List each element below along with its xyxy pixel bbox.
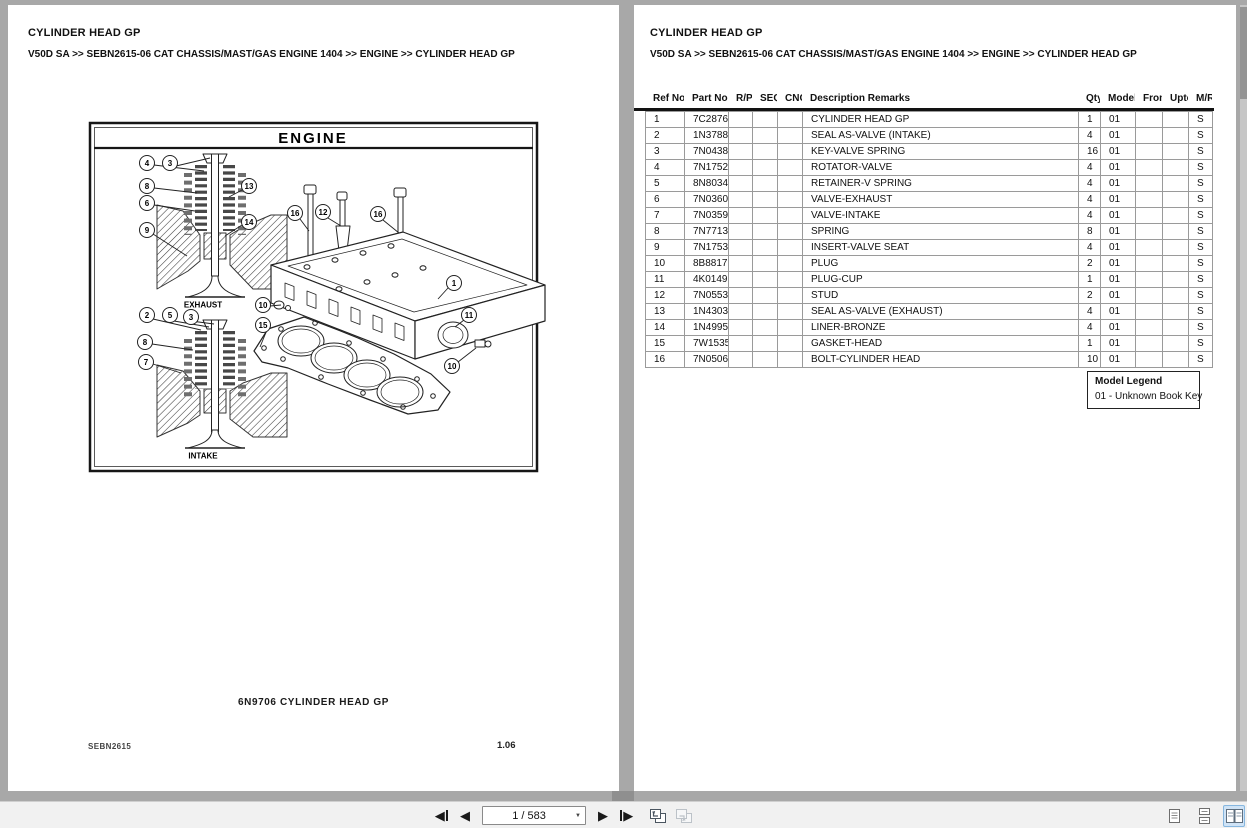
svg-text:11: 11	[465, 311, 474, 320]
cell-seq	[753, 256, 778, 272]
column-header: Qty	[1078, 91, 1100, 105]
table-row: 13 1N4303 SEAL AS-VALVE (EXHAUST) 4 01 S	[646, 304, 1213, 320]
cell-part-no: 7N0553	[685, 288, 729, 304]
cell-seq	[753, 144, 778, 160]
cell-qty: 4	[1079, 208, 1101, 224]
cell-upto	[1163, 272, 1189, 288]
cell-seq	[753, 112, 778, 128]
svg-text:4: 4	[145, 159, 150, 168]
svg-text:8: 8	[145, 182, 150, 191]
cell-mr: S	[1189, 288, 1213, 304]
cell-mr: S	[1189, 144, 1213, 160]
cell-description: GASKET-HEAD	[803, 336, 1079, 352]
cell-rp	[729, 160, 753, 176]
view-history-group	[648, 806, 694, 826]
cell-part-no: 8N8034	[685, 176, 729, 192]
cell-description: SPRING	[803, 224, 1079, 240]
cell-mr: S	[1189, 112, 1213, 128]
breadcrumb: V50D SA >> SEBN2615-06 CAT CHASSIS/MAST/…	[28, 49, 515, 60]
cell-ref-no: 13	[646, 304, 685, 320]
column-header: From	[1135, 91, 1162, 105]
cell-rp	[729, 288, 753, 304]
cell-model: 01	[1101, 304, 1136, 320]
cell-from	[1136, 192, 1163, 208]
cell-model: 01	[1101, 256, 1136, 272]
table-row: 5 8N8034 RETAINER-V SPRING 4 01 S	[646, 176, 1213, 192]
cell-part-no: 7N1753	[685, 240, 729, 256]
cell-seq	[753, 288, 778, 304]
svg-text:8: 8	[143, 338, 148, 347]
cell-part-no: 1N4303	[685, 304, 729, 320]
cell-mr: S	[1189, 304, 1213, 320]
cell-upto	[1163, 160, 1189, 176]
cell-mr: S	[1189, 336, 1213, 352]
page-number-value: 1 / 583	[483, 810, 575, 822]
cell-ref-no: 7	[646, 208, 685, 224]
bottom-toolbar: ◀ ◀ 1 / 583 ▼ ▶ ▶	[0, 801, 1247, 828]
cell-model: 01	[1101, 240, 1136, 256]
page-left: CYLINDER HEAD GP V50D SA >> SEBN2615-06 …	[8, 5, 619, 791]
svg-text:12: 12	[319, 208, 328, 217]
svg-text:2: 2	[145, 311, 150, 320]
page-title: CYLINDER HEAD GP	[28, 27, 141, 39]
cell-description: PLUG	[803, 256, 1079, 272]
cell-cng	[778, 208, 803, 224]
cell-cng	[778, 192, 803, 208]
page-right: CYLINDER HEAD GP V50D SA >> SEBN2615-06 …	[634, 5, 1236, 791]
table-row: 1 7C2876 CYLINDER HEAD GP 1 01 S	[646, 112, 1213, 128]
cell-seq	[753, 336, 778, 352]
cell-cng	[778, 176, 803, 192]
cell-upto	[1163, 320, 1189, 336]
cell-description: ROTATOR-VALVE	[803, 160, 1079, 176]
cell-mr: S	[1189, 128, 1213, 144]
cell-cng	[778, 128, 803, 144]
doc-code: SEBN2615	[88, 742, 131, 751]
cell-qty: 4	[1079, 320, 1101, 336]
cell-cng	[778, 144, 803, 160]
table-row: 4 7N1752 ROTATOR-VALVE 4 01 S	[646, 160, 1213, 176]
cell-upto	[1163, 288, 1189, 304]
next-page-button[interactable]: ▶	[594, 806, 612, 826]
vertical-scrollbar-thumb[interactable]	[1240, 7, 1247, 99]
next-view-icon	[675, 808, 693, 824]
table-row: 2 1N3788 SEAL AS-VALVE (INTAKE) 4 01 S	[646, 128, 1213, 144]
cell-upto	[1163, 112, 1189, 128]
table-row: 8 7N7713 SPRING 8 01 S	[646, 224, 1213, 240]
column-header: R/P	[728, 91, 752, 105]
continuous-view-icon	[1198, 808, 1211, 824]
model-legend-entry: 01 - Unknown Book Key	[1095, 390, 1192, 403]
svg-text:10: 10	[259, 301, 268, 310]
cell-from	[1136, 288, 1163, 304]
cell-mr: S	[1189, 256, 1213, 272]
cell-cng	[778, 320, 803, 336]
cell-part-no: 7C2876	[685, 112, 729, 128]
cell-rp	[729, 112, 753, 128]
svg-text:6: 6	[145, 199, 150, 208]
cell-rp	[729, 192, 753, 208]
cell-model: 01	[1101, 272, 1136, 288]
cell-ref-no: 5	[646, 176, 685, 192]
table-row: 15 7W1535 GASKET-HEAD 1 01 S	[646, 336, 1213, 352]
previous-page-button[interactable]: ◀	[456, 806, 474, 826]
cell-qty: 10	[1079, 352, 1101, 368]
cell-cng	[778, 304, 803, 320]
horizontal-scrollbar[interactable]	[0, 791, 1247, 801]
parts-table-section: Ref No.Part No.R/PSEQCNGDescription Rema…	[634, 5, 1236, 791]
cell-description: STUD	[803, 288, 1079, 304]
facing-pages-view-button[interactable]	[1223, 805, 1245, 827]
cell-model: 01	[1101, 320, 1136, 336]
cell-upto	[1163, 336, 1189, 352]
cell-rp	[729, 336, 753, 352]
svg-text:16: 16	[374, 210, 383, 219]
next-view-button[interactable]	[674, 806, 694, 826]
cell-from	[1136, 160, 1163, 176]
previous-view-button[interactable]	[648, 806, 668, 826]
cell-seq	[753, 320, 778, 336]
cell-rp	[729, 304, 753, 320]
page-code: 1.06	[497, 740, 516, 751]
svg-text:16: 16	[291, 209, 300, 218]
diagram-caption: 6N9706 CYLINDER HEAD GP	[8, 697, 619, 708]
cell-model: 01	[1101, 224, 1136, 240]
table-row: 11 4K0149 PLUG-CUP 1 01 S	[646, 272, 1213, 288]
last-page-button[interactable]: ▶	[617, 806, 635, 826]
table-row: 12 7N0553 STUD 2 01 S	[646, 288, 1213, 304]
svg-text:10: 10	[448, 362, 457, 371]
cell-qty: 1	[1079, 112, 1101, 128]
svg-text:5: 5	[168, 311, 173, 320]
cell-ref-no: 15	[646, 336, 685, 352]
cell-ref-no: 6	[646, 192, 685, 208]
cell-qty: 16	[1079, 144, 1101, 160]
cell-from	[1136, 272, 1163, 288]
cell-rp	[729, 208, 753, 224]
svg-text:13: 13	[245, 182, 254, 191]
cell-part-no: 1N3788	[685, 128, 729, 144]
model-legend-title: Model Legend	[1095, 376, 1192, 387]
column-header: Model	[1100, 91, 1135, 105]
cell-model: 01	[1101, 176, 1136, 192]
cell-ref-no: 16	[646, 352, 685, 368]
cell-from	[1136, 304, 1163, 320]
cell-rp	[729, 240, 753, 256]
cell-seq	[753, 224, 778, 240]
cell-qty: 2	[1079, 256, 1101, 272]
cell-rp	[729, 144, 753, 160]
cell-ref-no: 12	[646, 288, 685, 304]
dropdown-arrow-icon: ▼	[575, 813, 581, 819]
cell-part-no: 7N0506	[685, 352, 729, 368]
cell-part-no: 7N0359	[685, 208, 729, 224]
cell-ref-no: 3	[646, 144, 685, 160]
cell-part-no: 4K0149	[685, 272, 729, 288]
cell-upto	[1163, 352, 1189, 368]
cell-upto	[1163, 176, 1189, 192]
horizontal-scrollbar-thumb[interactable]	[612, 791, 634, 801]
cell-mr: S	[1189, 240, 1213, 256]
cell-mr: S	[1189, 192, 1213, 208]
column-header: Part No.	[684, 91, 728, 105]
column-header: SEQ	[752, 91, 777, 105]
vertical-scrollbar[interactable]	[1240, 5, 1247, 791]
cell-part-no: 7N0438	[685, 144, 729, 160]
cell-qty: 4	[1079, 240, 1101, 256]
facing-pages-view-icon	[1226, 809, 1243, 823]
cell-qty: 4	[1079, 176, 1101, 192]
engine-diagram: ENGINE EXHAUST	[57, 93, 567, 756]
cell-model: 01	[1101, 160, 1136, 176]
cell-model: 01	[1101, 336, 1136, 352]
single-page-view-button[interactable]	[1163, 805, 1185, 827]
cell-cng	[778, 352, 803, 368]
cell-seq	[753, 208, 778, 224]
cell-qty: 4	[1079, 304, 1101, 320]
parts-table-header: Ref No.Part No.R/PSEQCNGDescription Rema…	[645, 91, 1212, 105]
cell-seq	[753, 352, 778, 368]
cell-mr: S	[1189, 272, 1213, 288]
cell-description: PLUG-CUP	[803, 272, 1079, 288]
cell-part-no: 7N0360	[685, 192, 729, 208]
cell-seq	[753, 192, 778, 208]
cell-cng	[778, 112, 803, 128]
cell-upto	[1163, 256, 1189, 272]
cell-ref-no: 1	[646, 112, 685, 128]
cell-from	[1136, 240, 1163, 256]
cell-rp	[729, 176, 753, 192]
first-page-icon: ◀	[435, 809, 445, 822]
cell-model: 01	[1101, 208, 1136, 224]
cell-upto	[1163, 144, 1189, 160]
cell-seq	[753, 240, 778, 256]
cell-cng	[778, 256, 803, 272]
cell-ref-no: 14	[646, 320, 685, 336]
cell-qty: 1	[1079, 336, 1101, 352]
cell-upto	[1163, 128, 1189, 144]
cell-from	[1136, 176, 1163, 192]
cell-seq	[753, 176, 778, 192]
column-header: Description Remarks	[802, 91, 1078, 105]
cell-description: VALVE-EXHAUST	[803, 192, 1079, 208]
cell-model: 01	[1101, 128, 1136, 144]
first-page-button[interactable]: ◀	[433, 806, 451, 826]
cell-model: 01	[1101, 112, 1136, 128]
previous-page-icon: ◀	[460, 809, 470, 822]
cell-part-no: 7W1535	[685, 336, 729, 352]
cell-description: SEAL AS-VALVE (EXHAUST)	[803, 304, 1079, 320]
cell-qty: 4	[1079, 192, 1101, 208]
cell-description: SEAL AS-VALVE (INTAKE)	[803, 128, 1079, 144]
svg-text:14: 14	[245, 218, 254, 227]
exhaust-label: EXHAUST	[184, 301, 222, 310]
svg-text:3: 3	[189, 313, 194, 322]
column-header: CNG	[777, 91, 802, 105]
cell-description: LINER-BRONZE	[803, 320, 1079, 336]
cell-rp	[729, 224, 753, 240]
cell-upto	[1163, 304, 1189, 320]
cell-from	[1136, 144, 1163, 160]
cell-qty: 4	[1079, 128, 1101, 144]
intake-label: INTAKE	[188, 452, 218, 461]
table-row: 14 1N4995 LINER-BRONZE 4 01 S	[646, 320, 1213, 336]
cell-ref-no: 11	[646, 272, 685, 288]
table-row: 10 8B8817 PLUG 2 01 S	[646, 256, 1213, 272]
previous-view-icon	[649, 808, 667, 824]
cell-from	[1136, 224, 1163, 240]
cell-part-no: 7N7713	[685, 224, 729, 240]
cell-from	[1136, 320, 1163, 336]
cell-from	[1136, 352, 1163, 368]
cell-description: BOLT-CYLINDER HEAD	[803, 352, 1079, 368]
cell-from	[1136, 336, 1163, 352]
last-page-icon: ▶	[623, 809, 633, 822]
parts-table: 1 7C2876 CYLINDER HEAD GP 1 01 S	[645, 111, 1213, 368]
cell-mr: S	[1189, 224, 1213, 240]
cell-ref-no: 4	[646, 160, 685, 176]
cell-from	[1136, 208, 1163, 224]
continuous-view-button[interactable]	[1193, 805, 1215, 827]
cell-model: 01	[1101, 288, 1136, 304]
single-page-view-icon	[1168, 808, 1181, 824]
table-row: 6 7N0360 VALVE-EXHAUST 4 01 S	[646, 192, 1213, 208]
cell-part-no: 8B8817	[685, 256, 729, 272]
table-row: 7 7N0359 VALVE-INTAKE 4 01 S	[646, 208, 1213, 224]
table-row: 16 7N0506 BOLT-CYLINDER HEAD 10 01 S	[646, 352, 1213, 368]
svg-text:9: 9	[145, 226, 150, 235]
model-legend: Model Legend 01 - Unknown Book Key	[1087, 371, 1200, 409]
column-header: M/R	[1188, 91, 1212, 105]
cell-seq	[753, 160, 778, 176]
cell-mr: S	[1189, 352, 1213, 368]
cell-qty: 8	[1079, 224, 1101, 240]
cell-seq	[753, 304, 778, 320]
cell-ref-no: 9	[646, 240, 685, 256]
cell-description: CYLINDER HEAD GP	[803, 112, 1079, 128]
cell-rp	[729, 128, 753, 144]
cell-mr: S	[1189, 320, 1213, 336]
cell-cng	[778, 336, 803, 352]
cell-upto	[1163, 192, 1189, 208]
page-number-select[interactable]: 1 / 583 ▼	[482, 806, 586, 825]
cell-mr: S	[1189, 160, 1213, 176]
table-row: 3 7N0438 KEY-VALVE SPRING 16 01 S	[646, 144, 1213, 160]
cell-rp	[729, 272, 753, 288]
cell-upto	[1163, 224, 1189, 240]
cell-rp	[729, 320, 753, 336]
cell-ref-no: 10	[646, 256, 685, 272]
cell-rp	[729, 352, 753, 368]
cell-model: 01	[1101, 192, 1136, 208]
cell-part-no: 1N4995	[685, 320, 729, 336]
next-page-icon: ▶	[598, 809, 608, 822]
svg-text:3: 3	[168, 159, 173, 168]
column-header: Upto	[1162, 91, 1188, 105]
cell-cng	[778, 224, 803, 240]
svg-text:1: 1	[452, 279, 457, 288]
cell-upto	[1163, 208, 1189, 224]
cell-cng	[778, 240, 803, 256]
cell-description: INSERT-VALVE SEAT	[803, 240, 1079, 256]
table-row: 9 7N1753 INSERT-VALVE SEAT 4 01 S	[646, 240, 1213, 256]
cell-rp	[729, 256, 753, 272]
cell-qty: 4	[1079, 160, 1101, 176]
cell-description: KEY-VALVE SPRING	[803, 144, 1079, 160]
cell-from	[1136, 256, 1163, 272]
engine-plate-title: ENGINE	[278, 130, 348, 147]
cell-mr: S	[1189, 176, 1213, 192]
cell-cng	[778, 288, 803, 304]
cell-description: VALVE-INTAKE	[803, 208, 1079, 224]
cell-model: 01	[1101, 352, 1136, 368]
cell-qty: 2	[1079, 288, 1101, 304]
column-header: Ref No.	[645, 91, 684, 105]
cell-part-no: 7N1752	[685, 160, 729, 176]
cell-description: RETAINER-V SPRING	[803, 176, 1079, 192]
page-layout-buttons	[1163, 802, 1245, 828]
svg-text:7: 7	[144, 358, 149, 367]
cell-model: 01	[1101, 144, 1136, 160]
page-navigation: ◀ ◀ 1 / 583 ▼ ▶ ▶	[433, 802, 694, 828]
cell-seq	[753, 272, 778, 288]
cell-upto	[1163, 240, 1189, 256]
cell-seq	[753, 128, 778, 144]
cell-qty: 1	[1079, 272, 1101, 288]
cell-mr: S	[1189, 208, 1213, 224]
svg-text:15: 15	[259, 321, 268, 330]
cell-from	[1136, 128, 1163, 144]
cell-cng	[778, 272, 803, 288]
parts-catalog-viewer: CYLINDER HEAD GP V50D SA >> SEBN2615-06 …	[0, 0, 1247, 828]
cell-cng	[778, 160, 803, 176]
cell-ref-no: 8	[646, 224, 685, 240]
cell-ref-no: 2	[646, 128, 685, 144]
cell-from	[1136, 112, 1163, 128]
